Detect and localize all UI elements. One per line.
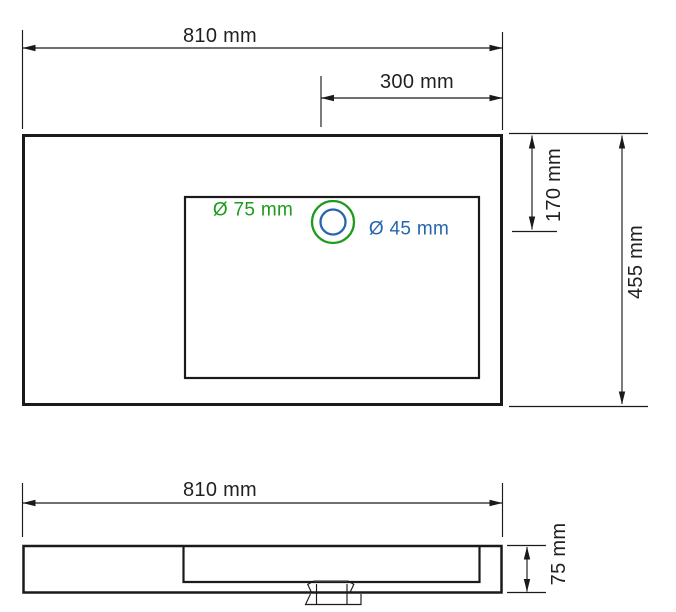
top-width-dimension-label: 810 mm bbox=[183, 26, 257, 46]
tap-offset-dimension-label: 300 mm bbox=[380, 72, 454, 92]
depth-dimension-label: 455 mm bbox=[626, 225, 646, 299]
outer-hole-circle bbox=[312, 201, 354, 243]
drain-hole-circles bbox=[312, 201, 354, 243]
inner-hole-circle bbox=[321, 210, 346, 235]
side-height-dimension-label: 75 mm bbox=[549, 523, 569, 586]
side-width-dimension-label: 810 mm bbox=[183, 480, 257, 500]
top-view-outline bbox=[24, 136, 502, 405]
outer-hole-diameter-label: Ø 75 mm bbox=[213, 201, 293, 220]
dim-170 bbox=[509, 134, 648, 232]
technical-drawing-canvas: 810 mm 300 mm 170 mm 455 mm Ø 75 mm Ø 45… bbox=[0, 0, 676, 612]
drawing-linework bbox=[0, 0, 676, 612]
dim-810-bottom bbox=[23, 483, 503, 537]
hole-offset-dimension-label: 170 mm bbox=[544, 148, 564, 222]
side-view-outline bbox=[24, 546, 502, 593]
inner-hole-diameter-label: Ø 45 mm bbox=[369, 220, 449, 239]
dim-75 bbox=[507, 546, 546, 593]
